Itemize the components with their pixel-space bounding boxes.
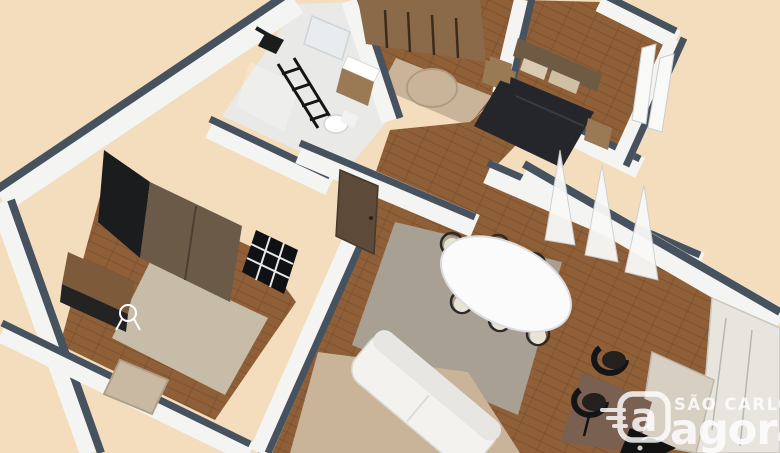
door-knob: [369, 216, 373, 220]
floor-plan-scene: a SÃO CARLOS agora: [0, 0, 780, 453]
watermark-subtitle: agora: [670, 405, 780, 453]
floor-plan-screenshot: a SÃO CARLOS agora: [0, 0, 780, 453]
badge-letter: a: [631, 395, 658, 441]
